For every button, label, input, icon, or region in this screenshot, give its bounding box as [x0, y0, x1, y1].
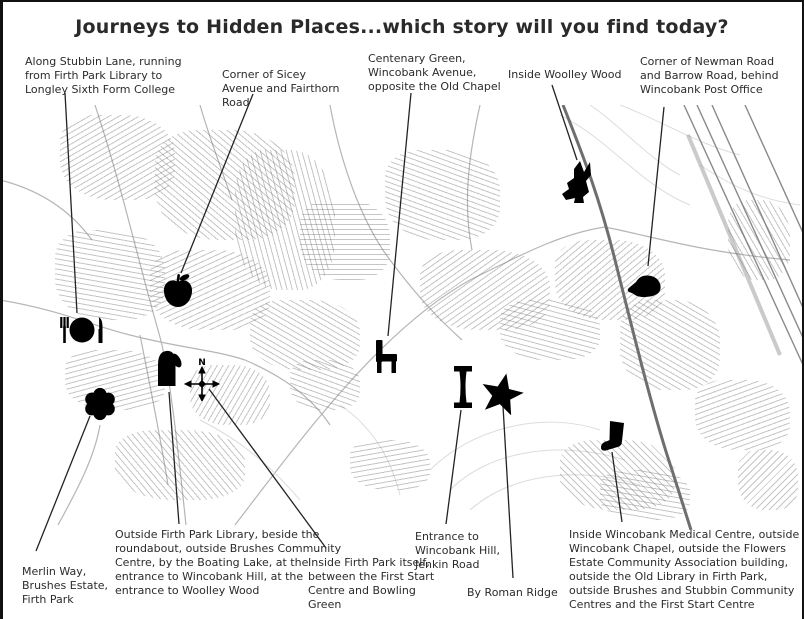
poster-page: { "title": "Journeys to Hidden Places...…: [0, 0, 804, 619]
page-title: Journeys to Hidden Places...which story …: [0, 16, 804, 38]
mitten-icon: [152, 347, 182, 387]
ann-wincobank-medical: Inside Wincobank Medical Centre, outside…: [569, 528, 803, 612]
ann-wincobank-hill-entrance: Entrance to Wincobank Hill, Jenkin Road: [415, 530, 533, 572]
star-icon: [479, 371, 525, 415]
apple-icon: [160, 273, 196, 309]
housing-hatch-layer: [0, 105, 804, 530]
ann-newman-road: Corner of Newman Road and Barrow Road, b…: [640, 55, 790, 97]
chair-icon: [373, 340, 399, 374]
mouse-icon: [626, 273, 662, 299]
flower-icon: [82, 386, 118, 422]
ann-stubbin-lane: Along Stubbin Lane, running from Firth P…: [25, 55, 183, 97]
fox-icon: [559, 159, 601, 205]
boot-icon: [598, 420, 626, 456]
ann-sicey-avenue: Corner of Sicey Avenue and Fairthorn Roa…: [222, 68, 350, 110]
street-map: [0, 105, 804, 530]
compass-icon: N: [183, 357, 221, 401]
ann-centenary-green: Centenary Green, Wincobank Avenue, oppos…: [368, 52, 502, 94]
meal-icon: [59, 315, 105, 345]
ann-woolley-wood: Inside Woolley Wood: [508, 68, 650, 82]
column-icon: [452, 366, 474, 408]
